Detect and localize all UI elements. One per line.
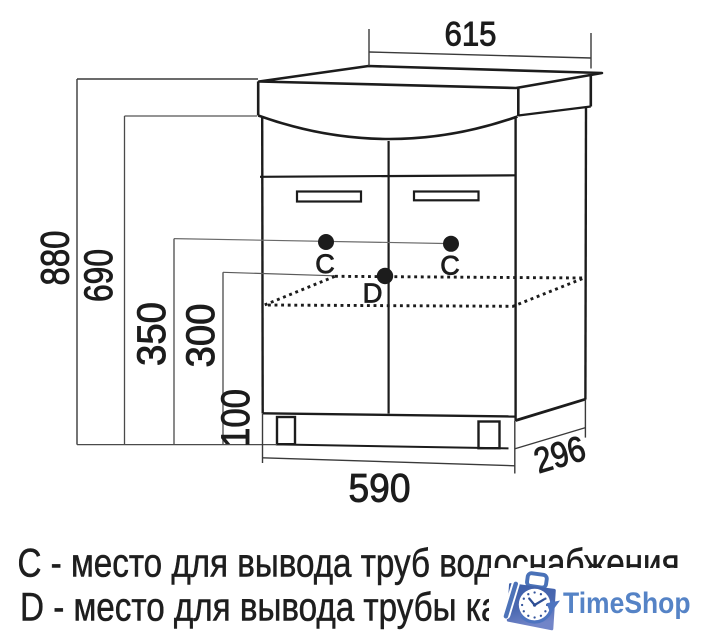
svg-text:300: 300: [179, 304, 223, 368]
svg-text:C: C: [315, 249, 335, 279]
svg-text:690: 690: [77, 249, 121, 302]
svg-text:590: 590: [349, 467, 411, 511]
svg-text:350: 350: [130, 302, 174, 366]
svg-text:D: D: [363, 278, 383, 309]
svg-text:615: 615: [445, 16, 497, 54]
svg-text:TimeShop: TimeShop: [563, 587, 691, 620]
svg-text:C: C: [440, 251, 460, 281]
svg-text:100: 100: [214, 389, 258, 447]
svg-text:880: 880: [34, 231, 78, 286]
